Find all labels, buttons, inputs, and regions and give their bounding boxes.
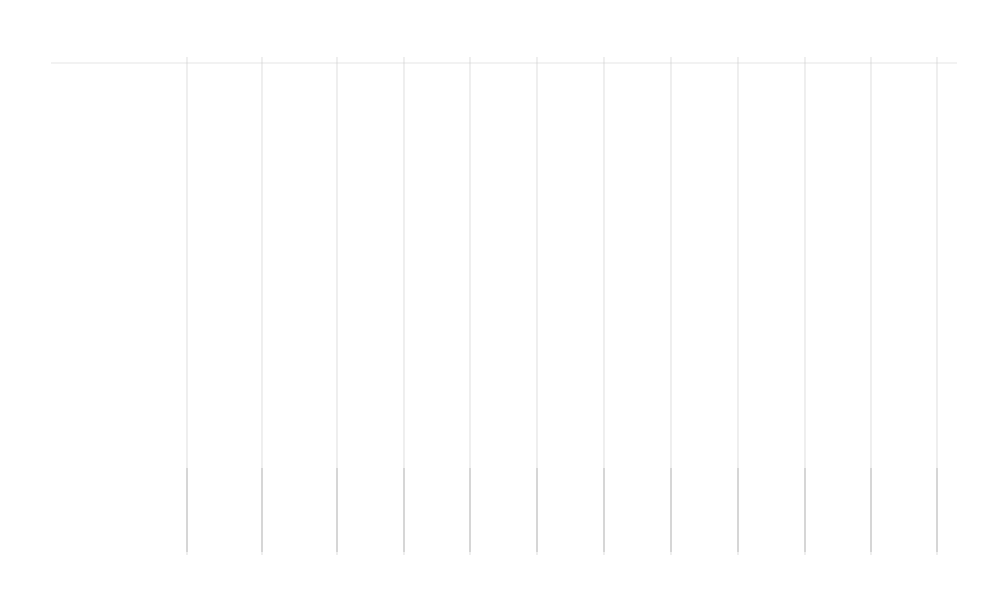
paper: [0, 0, 1000, 592]
floor-plan-drawing: [0, 0, 1000, 592]
floor-plan-canvas: [0, 0, 1000, 592]
